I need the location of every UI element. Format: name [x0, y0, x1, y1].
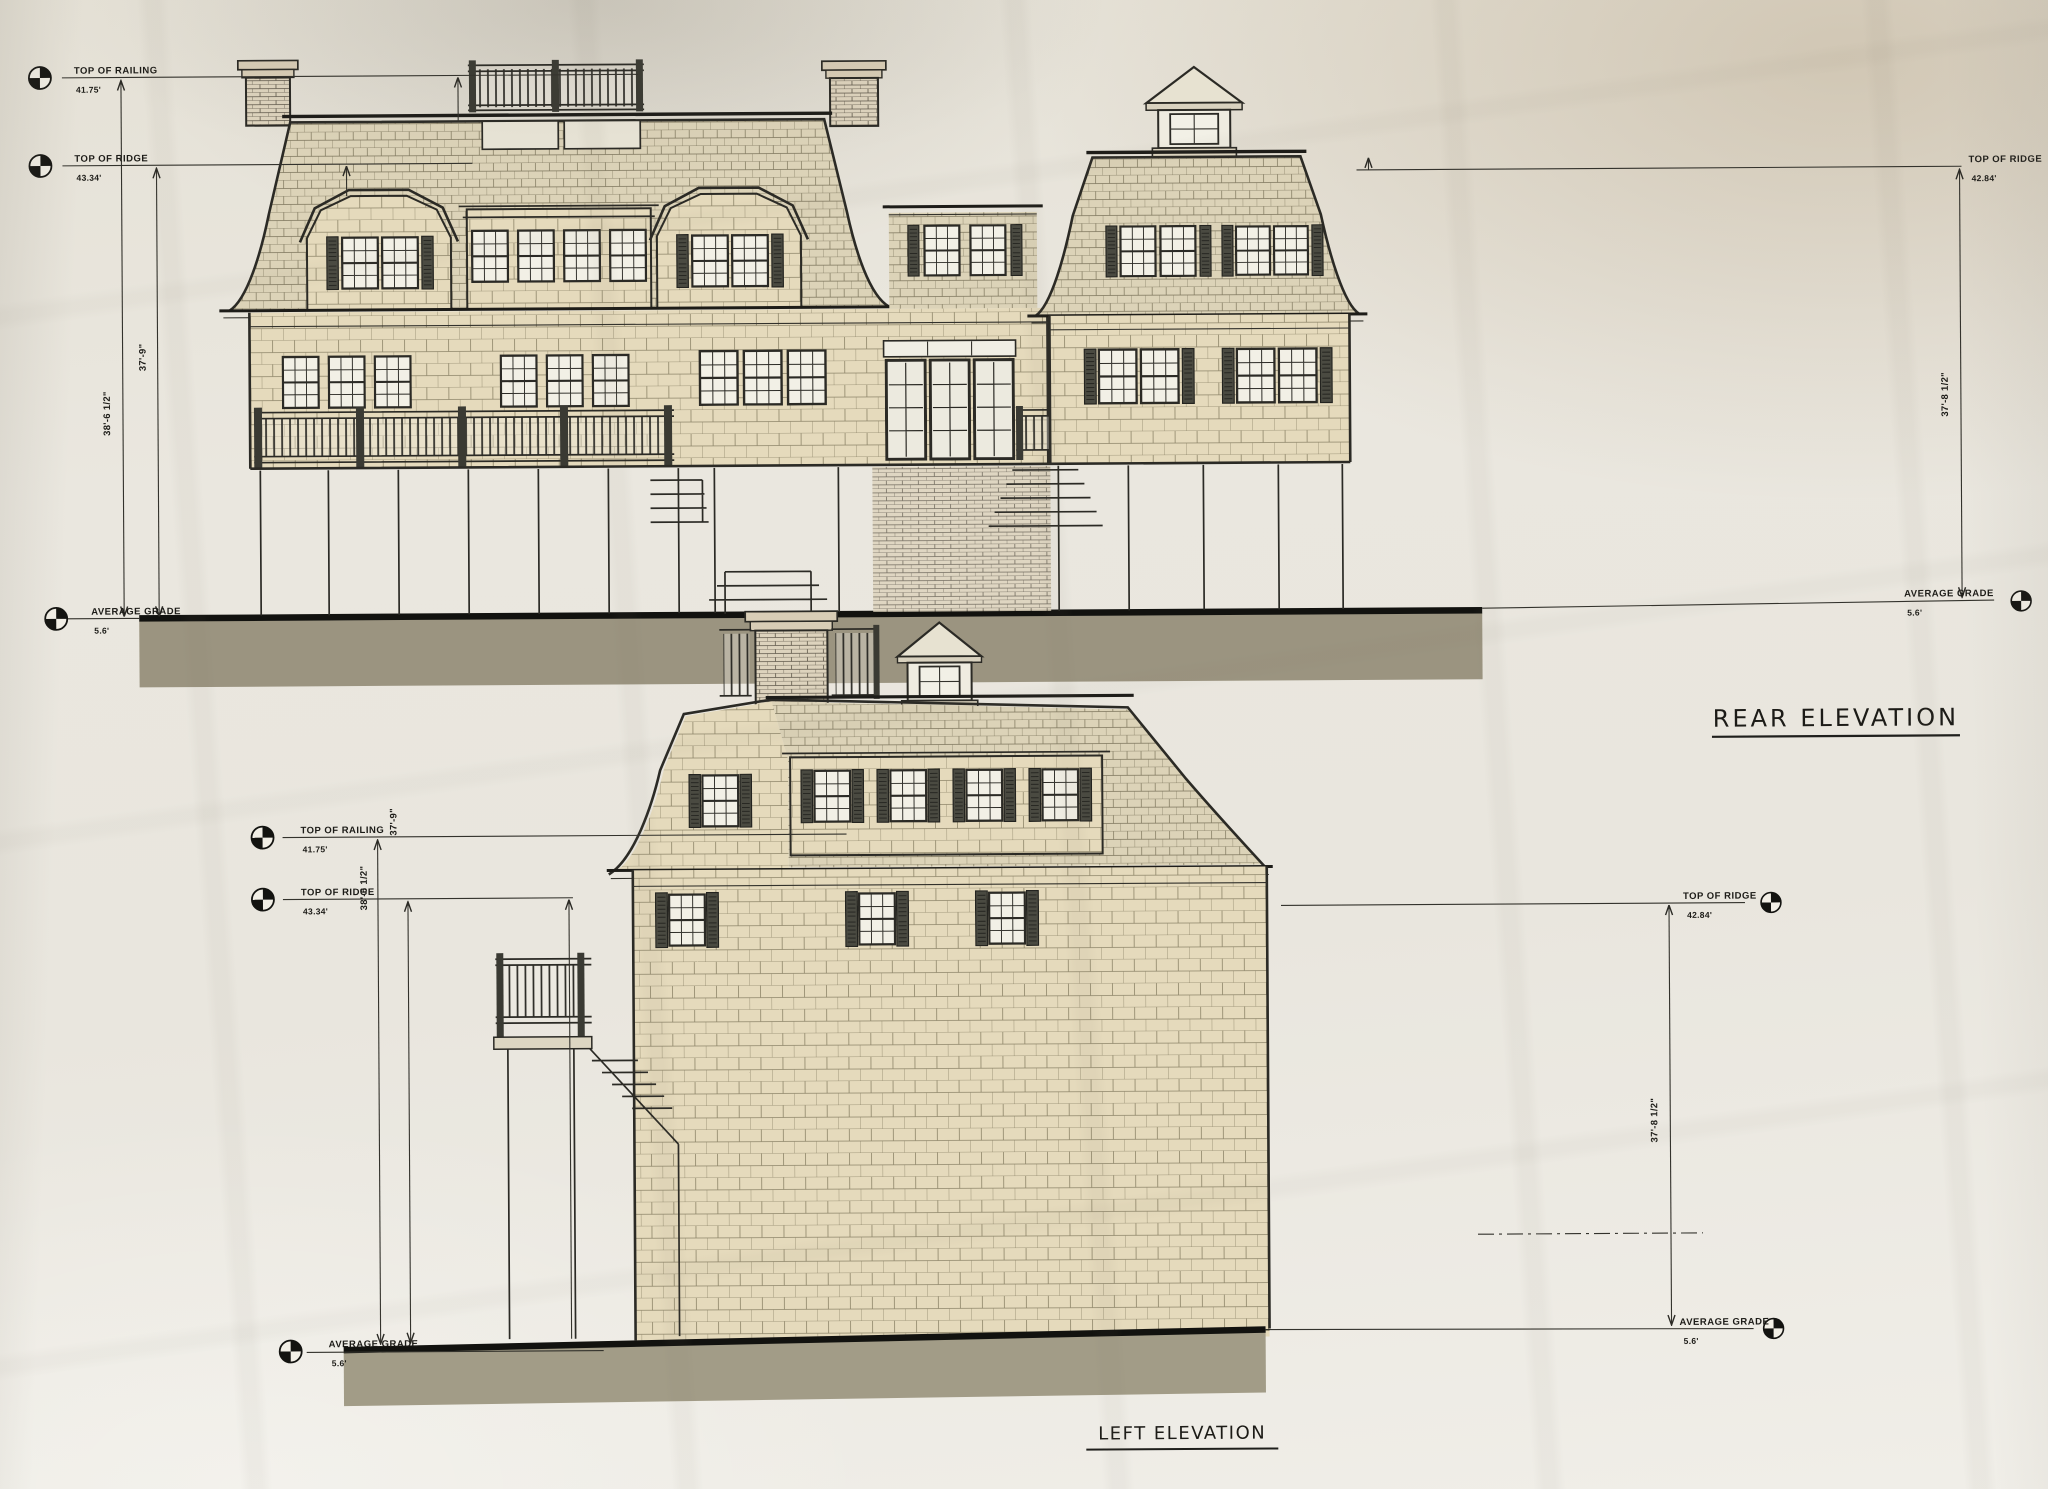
roof-deck-railing: [468, 59, 644, 112]
shed-dormer: [782, 751, 1111, 855]
left-top-of-ridge-value: 43.34': [303, 906, 328, 916]
rear-top-of-railing-value: 41.75': [76, 85, 101, 95]
left-railing-height-dimension: 38'-6 1/2": [359, 866, 370, 911]
rear-top-of-ridge-right-value: 42.84': [1972, 173, 1997, 183]
chimney: [745, 611, 838, 709]
left-title-underline: [1086, 1448, 1278, 1449]
rear-top-of-ridge-value: 43.34': [76, 173, 101, 183]
elevation-drawings-svg: TOP OF RAILING 41.75' TOP OF RIDGE 43.34…: [0, 0, 2048, 1489]
drawing-sheet: TOP OF RAILING 41.75' TOP OF RIDGE 43.34…: [0, 0, 2048, 1489]
right-gambrel-roof: [1034, 156, 1359, 316]
benchmark-level-icon: [2011, 591, 2031, 611]
rear-top-of-ridge-label: TOP OF RIDGE: [74, 153, 148, 164]
rear-elevation-title: REAR ELEVATION: [1713, 703, 1959, 733]
benchmark-level-icon: [1761, 892, 1781, 912]
shed-dormer: [459, 205, 660, 309]
rear-average-grade-right-label: AVERAGE GRADE: [1904, 588, 1994, 600]
left-ridge-height-right-dimension: 37'-8 1/2": [1649, 1098, 1660, 1143]
left-side-wall: [633, 867, 1270, 1341]
left-average-grade-right-value: 5.6': [1684, 1336, 1699, 1346]
rear-average-grade-right-value: 5.6': [1907, 608, 1922, 618]
rear-ridge-height-right-dimension: 37'-8 1/2": [1940, 372, 1951, 417]
foundation: [250, 462, 1351, 617]
benchmark-level-icon: [280, 1340, 302, 1362]
left-average-grade-value: 5.6': [332, 1358, 347, 1368]
left-top-of-railing-value: 41.75': [303, 844, 328, 854]
chimney: [822, 61, 886, 126]
left-average-grade-right-label: AVERAGE GRADE: [1680, 1316, 1770, 1328]
left-elevation-drawing: TOP OF RAILING 41.75' TOP OF RIDGE 43.34…: [250, 605, 1784, 1454]
benchmark-level-icon: [251, 827, 273, 849]
left-ridge-height-dimension: 37'-9": [388, 808, 399, 836]
benchmark-level-icon: [29, 67, 51, 89]
rear-top-of-ridge-right-label: TOP OF RIDGE: [1968, 154, 2042, 165]
rear-title-underline: [1712, 735, 1960, 737]
rear-average-grade-value: 5.6': [94, 626, 109, 636]
left-top-of-railing-label: TOP OF RAILING: [300, 825, 384, 837]
benchmark-level-icon: [29, 155, 51, 177]
left-top-of-ridge-right-label: TOP OF RIDGE: [1683, 891, 1757, 902]
benchmark-level-icon: [252, 889, 274, 911]
rear-elevation-drawing: TOP OF RAILING 41.75' TOP OF RIDGE 43.34…: [29, 50, 2046, 747]
left-top-of-ridge-right-value: 42.84': [1687, 910, 1712, 920]
left-elevation-title: LEFT ELEVATION: [1098, 1423, 1266, 1445]
rear-average-grade-label: AVERAGE GRADE: [91, 606, 181, 618]
rear-top-of-railing-label: TOP OF RAILING: [74, 65, 158, 77]
rear-railing-height-dimension: 38'-6 1/2": [102, 391, 113, 436]
rear-ridge-height-dimension: 37'-9": [138, 344, 149, 372]
left-average-grade-label: AVERAGE GRADE: [329, 1339, 419, 1351]
cupola: [1146, 67, 1243, 160]
middle-roof-section: [883, 206, 1044, 309]
benchmark-level-icon: [45, 608, 67, 630]
